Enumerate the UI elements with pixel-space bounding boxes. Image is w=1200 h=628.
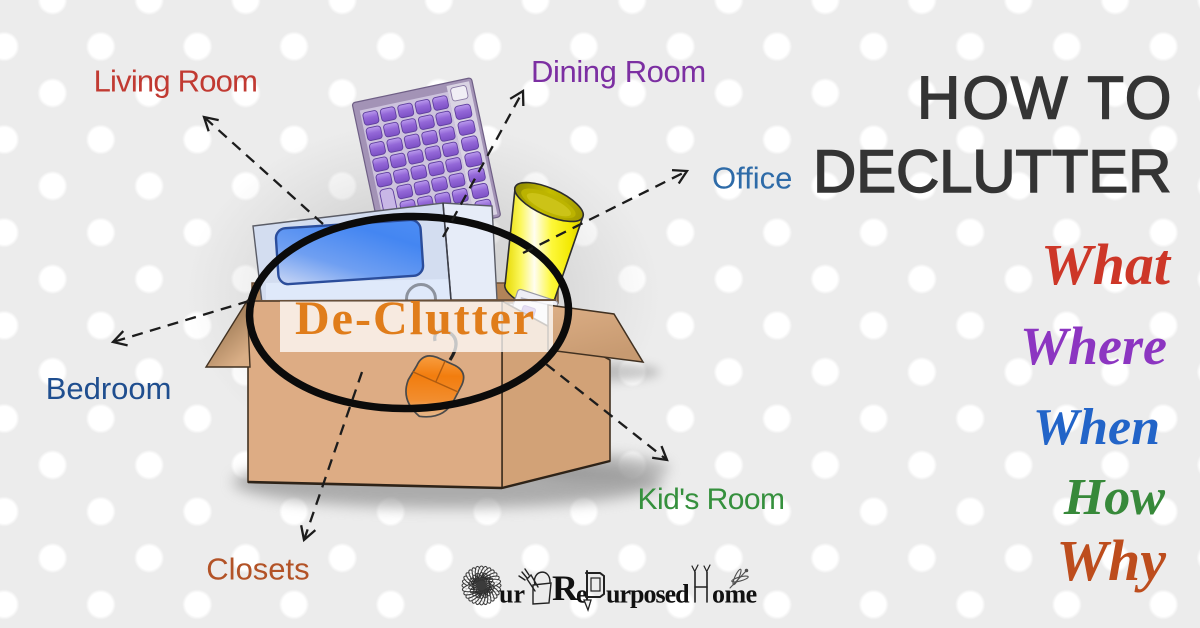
svg-text:HOW TO: HOW TO: [917, 65, 1173, 132]
svg-text:When: When: [1033, 399, 1160, 456]
svg-text:How: How: [1063, 469, 1165, 526]
svg-text:urposed: urposed: [606, 580, 690, 609]
svg-text:Dining Room: Dining Room: [531, 54, 706, 89]
svg-text:Why: Why: [1056, 528, 1166, 593]
svg-text:De-Clutter: De-Clutter: [295, 292, 536, 345]
svg-text:R: R: [552, 568, 579, 608]
svg-text:Closets: Closets: [206, 552, 309, 587]
svg-text:Office: Office: [712, 161, 792, 196]
svg-text:Kid's Room: Kid's Room: [638, 483, 785, 516]
svg-text:Bedroom: Bedroom: [46, 371, 172, 406]
svg-text:Living Room: Living Room: [94, 64, 258, 99]
svg-text:What: What: [1041, 232, 1172, 297]
svg-text:DECLUTTER: DECLUTTER: [813, 138, 1171, 205]
svg-text:ur: ur: [499, 580, 525, 609]
svg-text:Where: Where: [1020, 316, 1167, 376]
